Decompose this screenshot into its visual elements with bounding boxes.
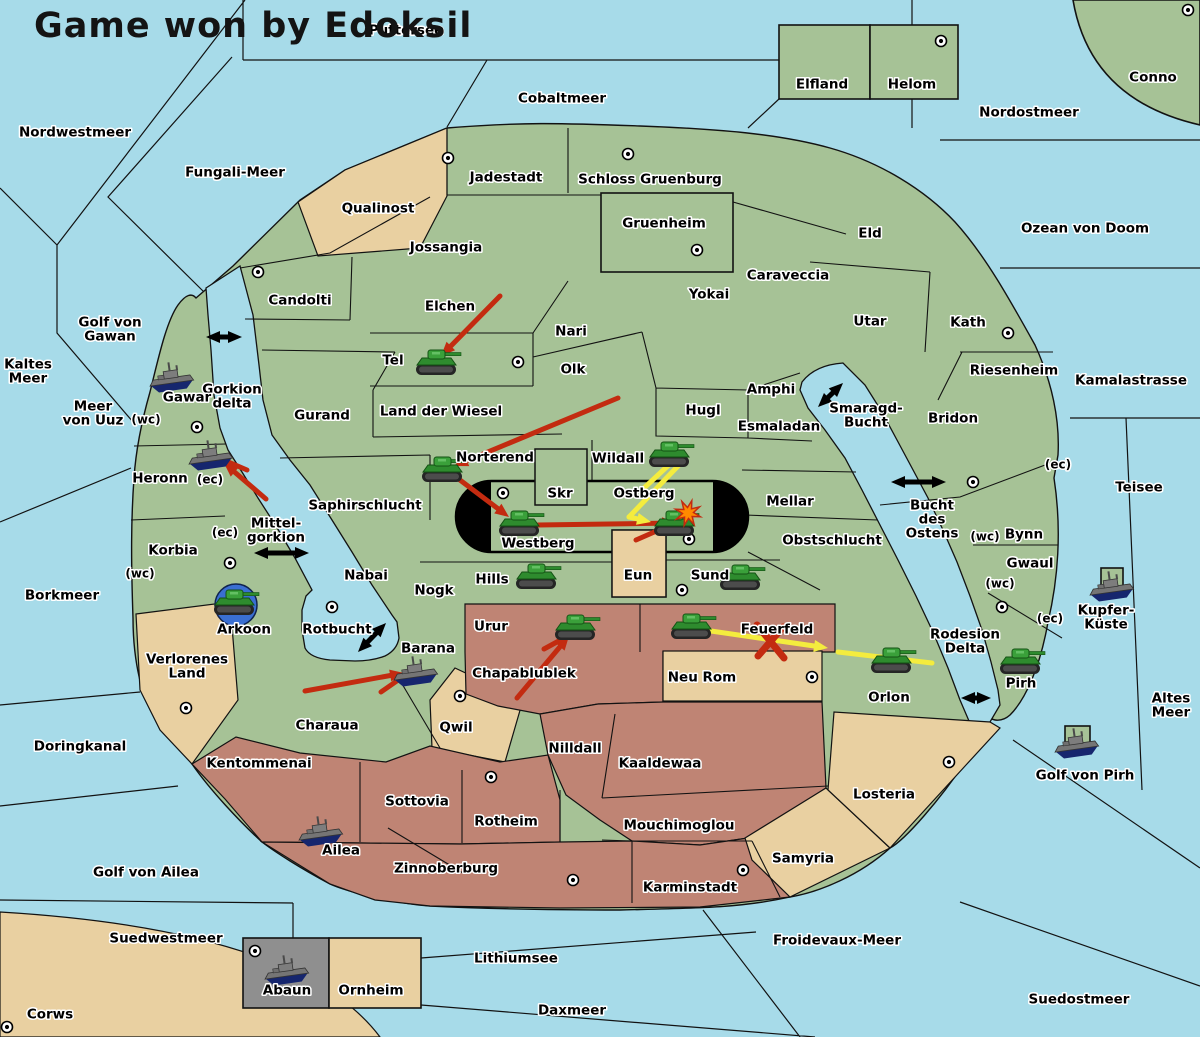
region-label: Kupfer-Küste [1078,603,1135,633]
region-label: Zinnoberburg [394,861,498,877]
supply-center-dot [1183,5,1194,16]
region-label: Heronn [132,471,188,487]
region-label: Nabai [344,568,388,584]
region-label: Elfland [796,77,848,93]
sea-label: Doringkanal [34,739,126,755]
coast-label: (ec) [212,526,238,540]
region-label: Helom [888,77,936,93]
region-label: Abaun [263,983,311,999]
region-label: Gurand [294,408,350,424]
coast-label: (ec) [1037,612,1063,626]
sea-label: Ozean von Doom [1021,221,1149,237]
supply-center-dot [513,357,524,368]
region-label: Mouchimoglou [623,818,734,834]
region-label: Hills [475,572,508,588]
supply-center-dot [677,585,688,596]
region-label: Skr [547,486,573,502]
supply-center-dot [455,691,466,702]
coast-label: (wc) [970,530,999,544]
region-label: Karminstadt [643,880,738,896]
region-label: Korbia [148,543,198,559]
region-label: Norterend [456,450,534,466]
region-label: Rotheim [474,814,538,830]
region-label: Kath [950,315,986,331]
sea-label: Nordwestmeer [19,125,131,141]
supply-center-dot [498,488,509,499]
region-label: Jadestadt [469,170,543,186]
region-label: Neu Rom [668,670,737,686]
supply-center-dot [623,149,634,160]
supply-center-dot [2,1022,13,1033]
sea-label: Teisee [1115,480,1163,496]
sea-label: Froidevaux-Meer [773,933,901,949]
coast-label: (ec) [1045,458,1071,472]
region-label: Hugl [685,403,720,419]
sea-label: Golf von Ailea [93,865,199,881]
supply-center-dot [253,267,264,278]
region-label: Olk [560,362,586,378]
sea-label: Golf von Pirh [1036,768,1135,784]
supply-center-dot [568,875,579,886]
sea-label: Suedwestmeer [109,931,223,947]
region-label: Arkoon [217,622,271,638]
region-label: Nari [555,324,587,340]
supply-center-dot [738,865,749,876]
supply-center-dot [181,703,192,714]
coast-label: (wc) [125,567,154,581]
region-label: Wildall [592,451,644,467]
region-label: Eun [624,568,652,584]
supply-center-dot [1003,328,1014,339]
region-label: Amphi [747,382,795,398]
region-label: Gruenheim [622,216,706,232]
region-label: Schloss Gruenburg [578,172,722,188]
region-label: Sottovia [385,794,449,810]
sea-label: Daxmeer [538,1003,606,1019]
supply-center-dot [807,672,818,683]
region-label: Caraveccia [747,268,829,284]
region-label: Charaua [295,718,358,734]
sea-label: Rotbucht [302,622,372,638]
region-label: Losteria [853,787,915,803]
region-label: Utar [853,314,887,330]
region-label: Urur [474,619,508,635]
region-label: Westberg [501,536,574,552]
supply-center-dot [936,36,947,47]
map-title: Game won by Edoksil [34,6,472,46]
region-label: Yokai [688,287,730,303]
region-label: Obstschlucht [782,533,882,549]
region-label: Bridon [928,411,978,427]
region-label: Candolti [268,293,331,309]
supply-center-dot [944,757,955,768]
region-label: Nogk [414,583,454,599]
region-label: Nilldall [548,741,601,757]
supply-center-dot [225,558,236,569]
sea-label: Mittel-gorkion [247,516,305,546]
region-label: Gwaul [1007,556,1054,572]
coast-label: (wc) [131,413,160,427]
region-label: Ornheim [338,983,403,999]
region-label: Samyria [772,851,834,867]
sea-label: Nordostmeer [979,105,1079,121]
coast-label: (ec) [197,473,223,487]
region-label: Barana [401,641,455,657]
supply-center-dot [250,946,261,957]
region-label: Tel [382,353,403,369]
region-label: Eld [858,226,882,242]
sea-label: Borkmeer [25,588,100,604]
region-label: Qwil [439,720,472,736]
supply-center-dot [997,602,1008,613]
supply-center-dot [192,422,203,433]
region-label: Ostberg [613,486,674,502]
supply-center-dot [443,153,454,164]
region-label: Orlon [868,690,910,706]
sea-label: Lithiumsee [474,951,558,967]
region-label: Riesenheim [970,363,1058,379]
region-label: Sund [691,568,730,584]
region-label: Qualinost [342,201,415,217]
game-map-screenshot: PutterseeCobaltmeerNordwestmeerFungali-M… [0,0,1200,1037]
region-label: Mellar [766,494,814,510]
region-label: Chapablublek [472,666,577,682]
sea-label: Golf vonGawan [78,315,141,345]
supply-center-dot [692,245,703,256]
sea-label: KaltesMeer [4,357,52,387]
region-label: Conno [1129,70,1177,86]
region-label: Esmaladan [738,419,821,435]
region-label: Bynn [1005,527,1043,543]
region-label: Jossangia [409,240,483,256]
region-label: Land der Wiesel [380,404,502,420]
diplomacy-map: PutterseeCobaltmeerNordwestmeerFungali-M… [0,0,1200,1037]
region-label: Ailea [322,843,360,859]
supply-center-dot [327,602,338,613]
region-label: Pirh [1006,676,1037,692]
sea-label: Fungali-Meer [185,165,285,181]
sea-label: AltesMeer [1152,691,1191,721]
region-label: Gawar [163,390,212,406]
supply-center-dot [968,477,979,488]
coast-label: (wc) [985,577,1014,591]
region-label: Saphirschlucht [308,498,422,514]
region-label: Elchen [425,299,475,315]
region-label: Kaaldewaa [619,756,702,772]
sea-label: Suedostmeer [1029,992,1130,1008]
sea-label: Kamalastrasse [1075,373,1187,389]
sea-label: Cobaltmeer [518,91,606,107]
supply-center-dot [486,772,497,783]
region-label: Kentommenai [206,756,311,772]
region-label: Corws [27,1007,73,1023]
region-label: Feuerfeld [741,622,814,638]
